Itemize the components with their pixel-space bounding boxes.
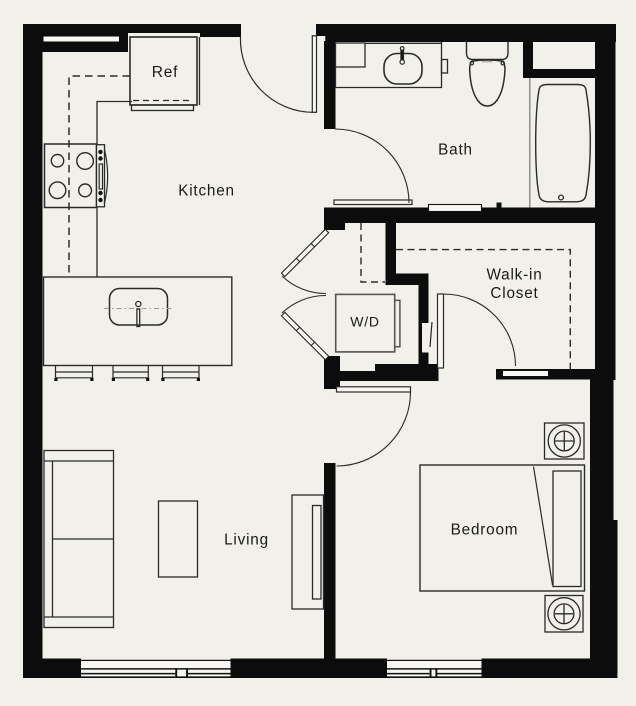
svg-text:Living: Living <box>224 532 269 549</box>
svg-text:Bedroom: Bedroom <box>451 522 519 539</box>
svg-text:Closet: Closet <box>490 285 538 302</box>
svg-text:Ref: Ref <box>152 64 179 81</box>
svg-text:Walk-in: Walk-in <box>486 267 542 284</box>
svg-text:Bath: Bath <box>438 142 473 159</box>
svg-text:W/D: W/D <box>350 314 380 330</box>
svg-text:Kitchen: Kitchen <box>178 183 235 200</box>
